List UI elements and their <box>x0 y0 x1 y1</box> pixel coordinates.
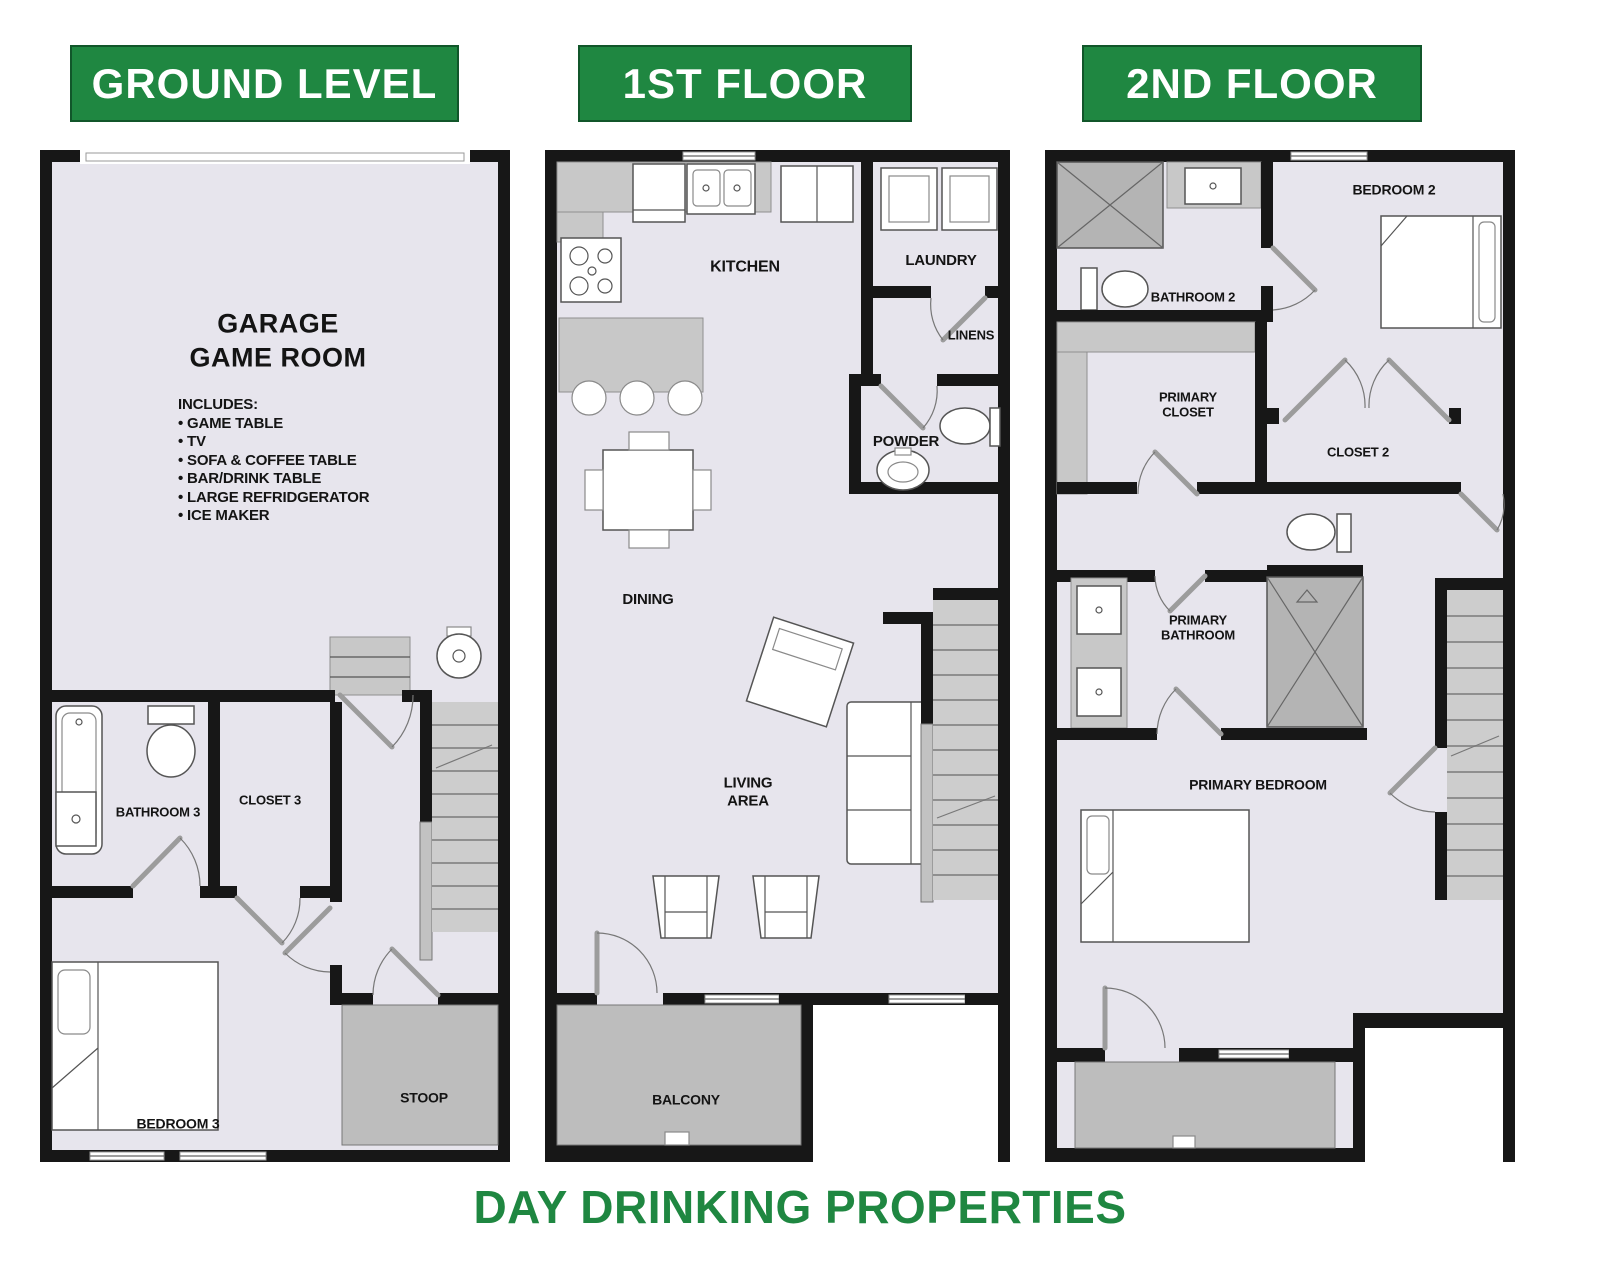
bedroom3-label: BEDROOM 3 <box>137 1116 220 1133</box>
first-floor-floorplan <box>545 150 1010 1162</box>
toilet-powder <box>940 408 1000 446</box>
bedroom2-label: BEDROOM 2 <box>1353 182 1436 199</box>
bathroom2-label: BATHROOM 2 <box>1151 289 1235 304</box>
includes-item: • GAME TABLE <box>178 415 369 434</box>
closet2-label: CLOSET 2 <box>1327 444 1389 459</box>
refrigerator <box>781 166 853 222</box>
first-floor-header: 1ST FLOOR <box>578 45 912 122</box>
toilet-primary <box>1287 514 1351 552</box>
primary-bedroom-label: PRIMARY BEDROOM <box>1189 777 1327 794</box>
ground-level-header: GROUND LEVEL <box>70 45 459 122</box>
stoop-label: STOOP <box>400 1090 448 1107</box>
laundry-label: LAUNDRY <box>905 252 976 270</box>
includes-item: • LARGE REFRIDGERATOR <box>178 489 369 508</box>
includes-item: • SOFA & COFFEE TABLE <box>178 452 369 471</box>
kitchen-sink <box>687 164 755 214</box>
shower-bathroom2 <box>1057 162 1163 248</box>
rear-landing <box>1075 1062 1335 1148</box>
living-area-label: LIVING AREA <box>724 774 773 809</box>
toilet-bathroom3 <box>147 706 195 777</box>
second-floor-header: 2ND FLOOR <box>1082 45 1422 122</box>
dishwasher <box>633 164 685 222</box>
garage-game-room-label: GARAGE GAME ROOM <box>190 307 367 375</box>
bed-bedroom3 <box>52 962 218 1130</box>
bar-stools <box>572 381 702 415</box>
primary-bathroom-label: PRIMARY BATHROOM <box>1161 613 1235 644</box>
second-floor-floorplan <box>1045 150 1515 1162</box>
bed-primary <box>1081 810 1249 942</box>
balcony-area <box>557 1005 801 1145</box>
primary-closet-label: PRIMARY CLOSET <box>1159 390 1217 421</box>
floorplan-sheet: GROUND LEVEL 1ST FLOOR 2ND FLOOR <box>0 0 1600 1261</box>
dining-label: DINING <box>622 591 673 609</box>
includes-item: • BAR/DRINK TABLE <box>178 470 369 489</box>
includes-item: • TV <box>178 433 369 452</box>
powder-label: POWDER <box>873 433 939 451</box>
includes-item: • ICE MAKER <box>178 507 369 526</box>
bathroom3-label: BATHROOM 3 <box>114 804 202 819</box>
includes-heading: INCLUDES: <box>178 396 369 415</box>
dining-table <box>585 432 711 548</box>
stove <box>561 238 621 302</box>
armchair <box>653 876 719 938</box>
vanity-primary <box>1071 578 1127 728</box>
sofa <box>847 702 927 864</box>
kitchen-label: KITCHEN <box>710 259 780 278</box>
armchair <box>753 876 819 938</box>
linens-label: LINENS <box>948 327 994 342</box>
stairs-ground <box>432 702 498 932</box>
bed-bedroom2 <box>1381 216 1501 328</box>
sink-bathroom3 <box>56 792 96 846</box>
stair-landing <box>330 637 410 695</box>
shower-primary <box>1267 577 1363 727</box>
company-title: DAY DRINKING PROPERTIES <box>0 1180 1600 1234</box>
stairs-second <box>1435 578 1503 900</box>
toilet-bathroom2 <box>1081 268 1148 310</box>
garage-door <box>80 150 470 164</box>
vanity-bathroom2 <box>1167 162 1261 208</box>
stoop-area <box>342 1005 498 1145</box>
ground-level-floorplan <box>40 150 510 1162</box>
balcony-label: BALCONY <box>652 1092 720 1109</box>
garage-includes-list: INCLUDES: • GAME TABLE • TV • SOFA & COF… <box>178 396 369 526</box>
closet3-label: CLOSET 3 <box>239 792 301 807</box>
